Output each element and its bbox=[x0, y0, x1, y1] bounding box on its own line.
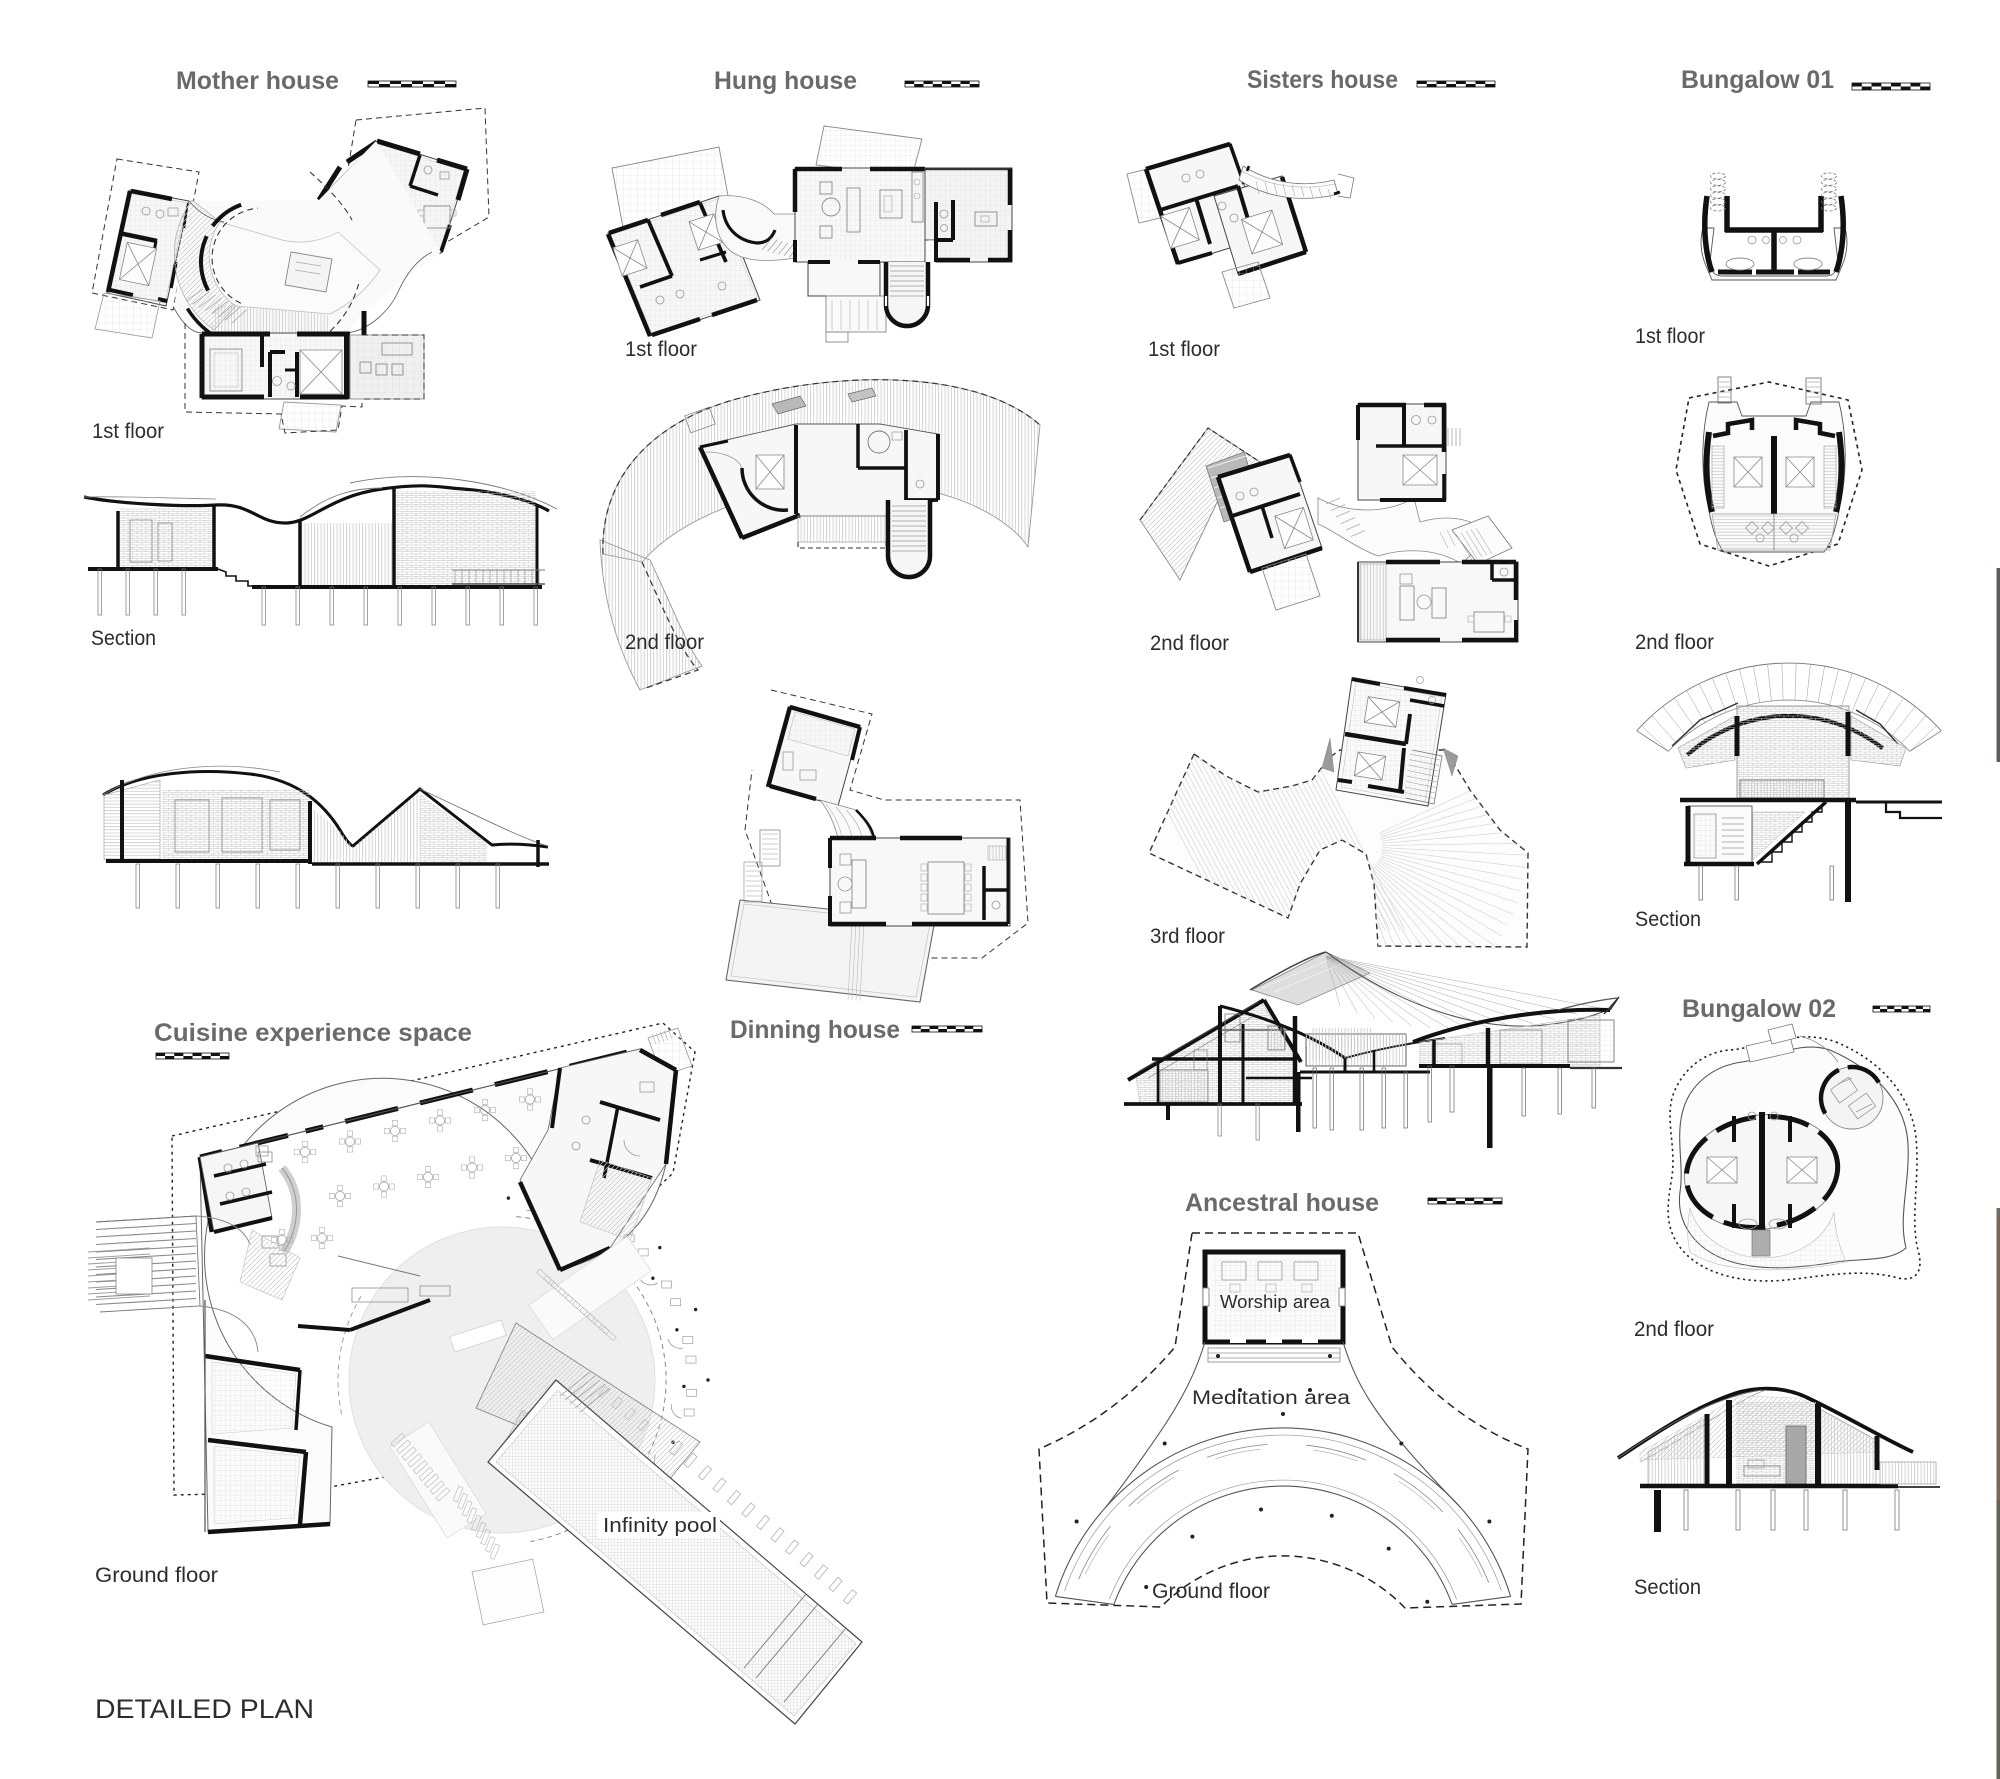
svg-text:Infinity pool: Infinity pool bbox=[603, 1515, 717, 1537]
svg-text:2nd floor: 2nd floor bbox=[1634, 1318, 1714, 1341]
svg-text:Ancestral house: Ancestral house bbox=[1185, 1189, 1379, 1217]
svg-text:1st floor: 1st floor bbox=[1148, 338, 1220, 361]
svg-text:Section: Section bbox=[91, 627, 156, 650]
svg-text:2nd floor: 2nd floor bbox=[1635, 631, 1714, 654]
svg-text:Hung house: Hung house bbox=[714, 67, 857, 95]
svg-text:2nd floor: 2nd floor bbox=[1150, 632, 1229, 655]
svg-text:1st floor: 1st floor bbox=[625, 338, 697, 361]
svg-text:Ground floor: Ground floor bbox=[95, 1564, 218, 1587]
svg-text:Section: Section bbox=[1635, 908, 1701, 931]
svg-text:Ground floor: Ground floor bbox=[1152, 1580, 1270, 1603]
svg-text:Cuisine experience space: Cuisine experience space bbox=[154, 1019, 472, 1047]
svg-text:3rd floor: 3rd floor bbox=[1150, 925, 1225, 948]
svg-text:Sisters house: Sisters house bbox=[1247, 66, 1398, 94]
svg-text:Bungalow 01: Bungalow 01 bbox=[1681, 66, 1834, 94]
svg-text:DETAILED PLAN: DETAILED PLAN bbox=[95, 1694, 314, 1724]
svg-text:Meditation area: Meditation area bbox=[1192, 1388, 1351, 1409]
svg-text:1st floor: 1st floor bbox=[1635, 325, 1705, 348]
svg-text:1st floor: 1st floor bbox=[92, 420, 164, 443]
svg-text:Worship area: Worship area bbox=[1220, 1292, 1331, 1312]
svg-text:Section: Section bbox=[1634, 1576, 1701, 1599]
svg-text:Dinning house: Dinning house bbox=[730, 1016, 900, 1044]
svg-text:2nd floor: 2nd floor bbox=[625, 631, 704, 654]
svg-text:Mother house: Mother house bbox=[176, 67, 339, 95]
svg-text:Bungalow 02: Bungalow 02 bbox=[1682, 995, 1836, 1023]
